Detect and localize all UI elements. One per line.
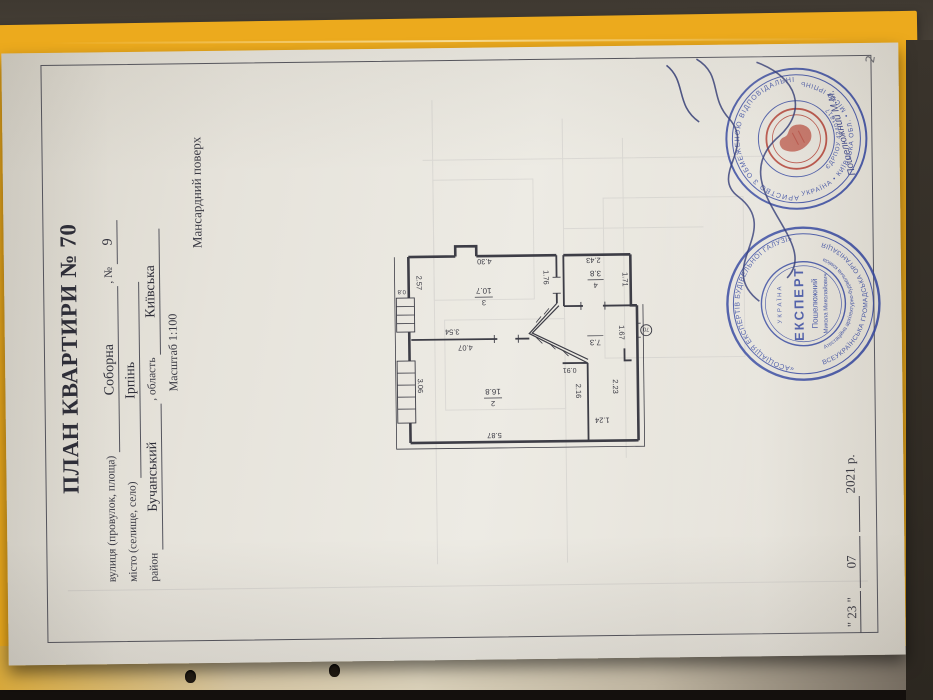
dim-label: 5.87 [487, 431, 502, 440]
street-label: вулиця (провулок, площа) [105, 456, 119, 583]
region-value: Київська [142, 228, 161, 354]
room-label: 4 3.8 [587, 269, 603, 290]
dim-label: 2.43 [586, 256, 601, 265]
date-year: 2021 р. [842, 454, 857, 493]
date-line: " 23 " 07 2021 р. [842, 393, 862, 633]
dim-label: 4.07 [458, 344, 473, 353]
interior-walls [410, 255, 632, 444]
house-number-label: , № [103, 267, 115, 284]
dim-label: 1.67 [617, 326, 626, 341]
svg-text:7.3: 7.3 [589, 338, 601, 347]
punch-hole-icon [185, 670, 196, 683]
dim-label: 0.8 [396, 289, 405, 295]
dim-label: 3.06 [415, 379, 424, 394]
door-jamb-ticks [493, 277, 605, 343]
svg-text:4: 4 [593, 281, 597, 290]
exterior-walls [408, 245, 638, 444]
dim-label: 3.54 [444, 328, 459, 337]
table-shadow [0, 690, 933, 700]
date-day: " 23 " [844, 591, 862, 633]
dim-label: 0.91 [562, 367, 576, 374]
city-label: місто (селище, село) [127, 481, 140, 582]
apartment-plan-document: ПЛАН КВАРТИРИ № 70 вулиця (провулок, пло… [1, 43, 904, 666]
signature [656, 35, 890, 328]
photo-scene: ПЛАН КВАРТИРИ № 70 вулиця (провулок, пло… [0, 0, 933, 700]
svg-text:3: 3 [481, 299, 485, 308]
region-label: , область [146, 357, 159, 400]
floor-caption: Мансардний поверх [188, 137, 205, 249]
apartment-number-in-circle: 70 [643, 326, 649, 332]
district-label: район [148, 553, 160, 582]
sloped-wall [528, 303, 587, 364]
floor-plan: 4.30 2.43 3.54 4.07 5.87 0.8 0.91 1.24 2… [388, 240, 661, 458]
window-icon [396, 298, 414, 332]
dim-label: 2.23 [610, 380, 619, 395]
dim-label: 1.71 [620, 273, 629, 288]
svg-text:3.8: 3.8 [589, 269, 601, 278]
room-label: 7.3 [587, 336, 603, 347]
house-number-value: 9 [100, 220, 118, 264]
dim-label: 2.16 [573, 384, 582, 399]
room-label: 2 16.8 [483, 387, 501, 408]
window-icon [397, 361, 416, 423]
svg-text:16.8: 16.8 [484, 387, 500, 396]
document-sheet: ПЛАН КВАРТИРИ № 70 вулиця (провулок, пло… [1, 43, 905, 666]
punch-hole-icon [329, 664, 340, 677]
district-value: Бучанський [145, 404, 164, 550]
address-block: вулиця (провулок, площа) Соборна , № 9 м… [99, 112, 168, 583]
room-label: 3 10.7 [474, 287, 492, 308]
street-value: Соборна [101, 287, 120, 453]
sloped-wall-hatch [535, 309, 568, 357]
dim-label: 2.57 [414, 276, 423, 291]
dim-label: 1.24 [594, 416, 609, 425]
svg-text:10.7: 10.7 [475, 287, 491, 296]
dim-label: 1.76 [541, 271, 550, 286]
city-value: Ірпінь [122, 282, 141, 478]
date-month: 07 [843, 536, 861, 588]
date-blank [843, 497, 860, 533]
scale-note: Масштаб 1:100 [165, 314, 181, 392]
table-surface-right [906, 40, 933, 700]
floor-plan-drawing: 4.30 2.43 3.54 4.07 5.87 0.8 0.91 1.24 2… [388, 240, 661, 458]
dim-label: 4.30 [477, 258, 492, 267]
svg-text:2: 2 [490, 400, 494, 409]
